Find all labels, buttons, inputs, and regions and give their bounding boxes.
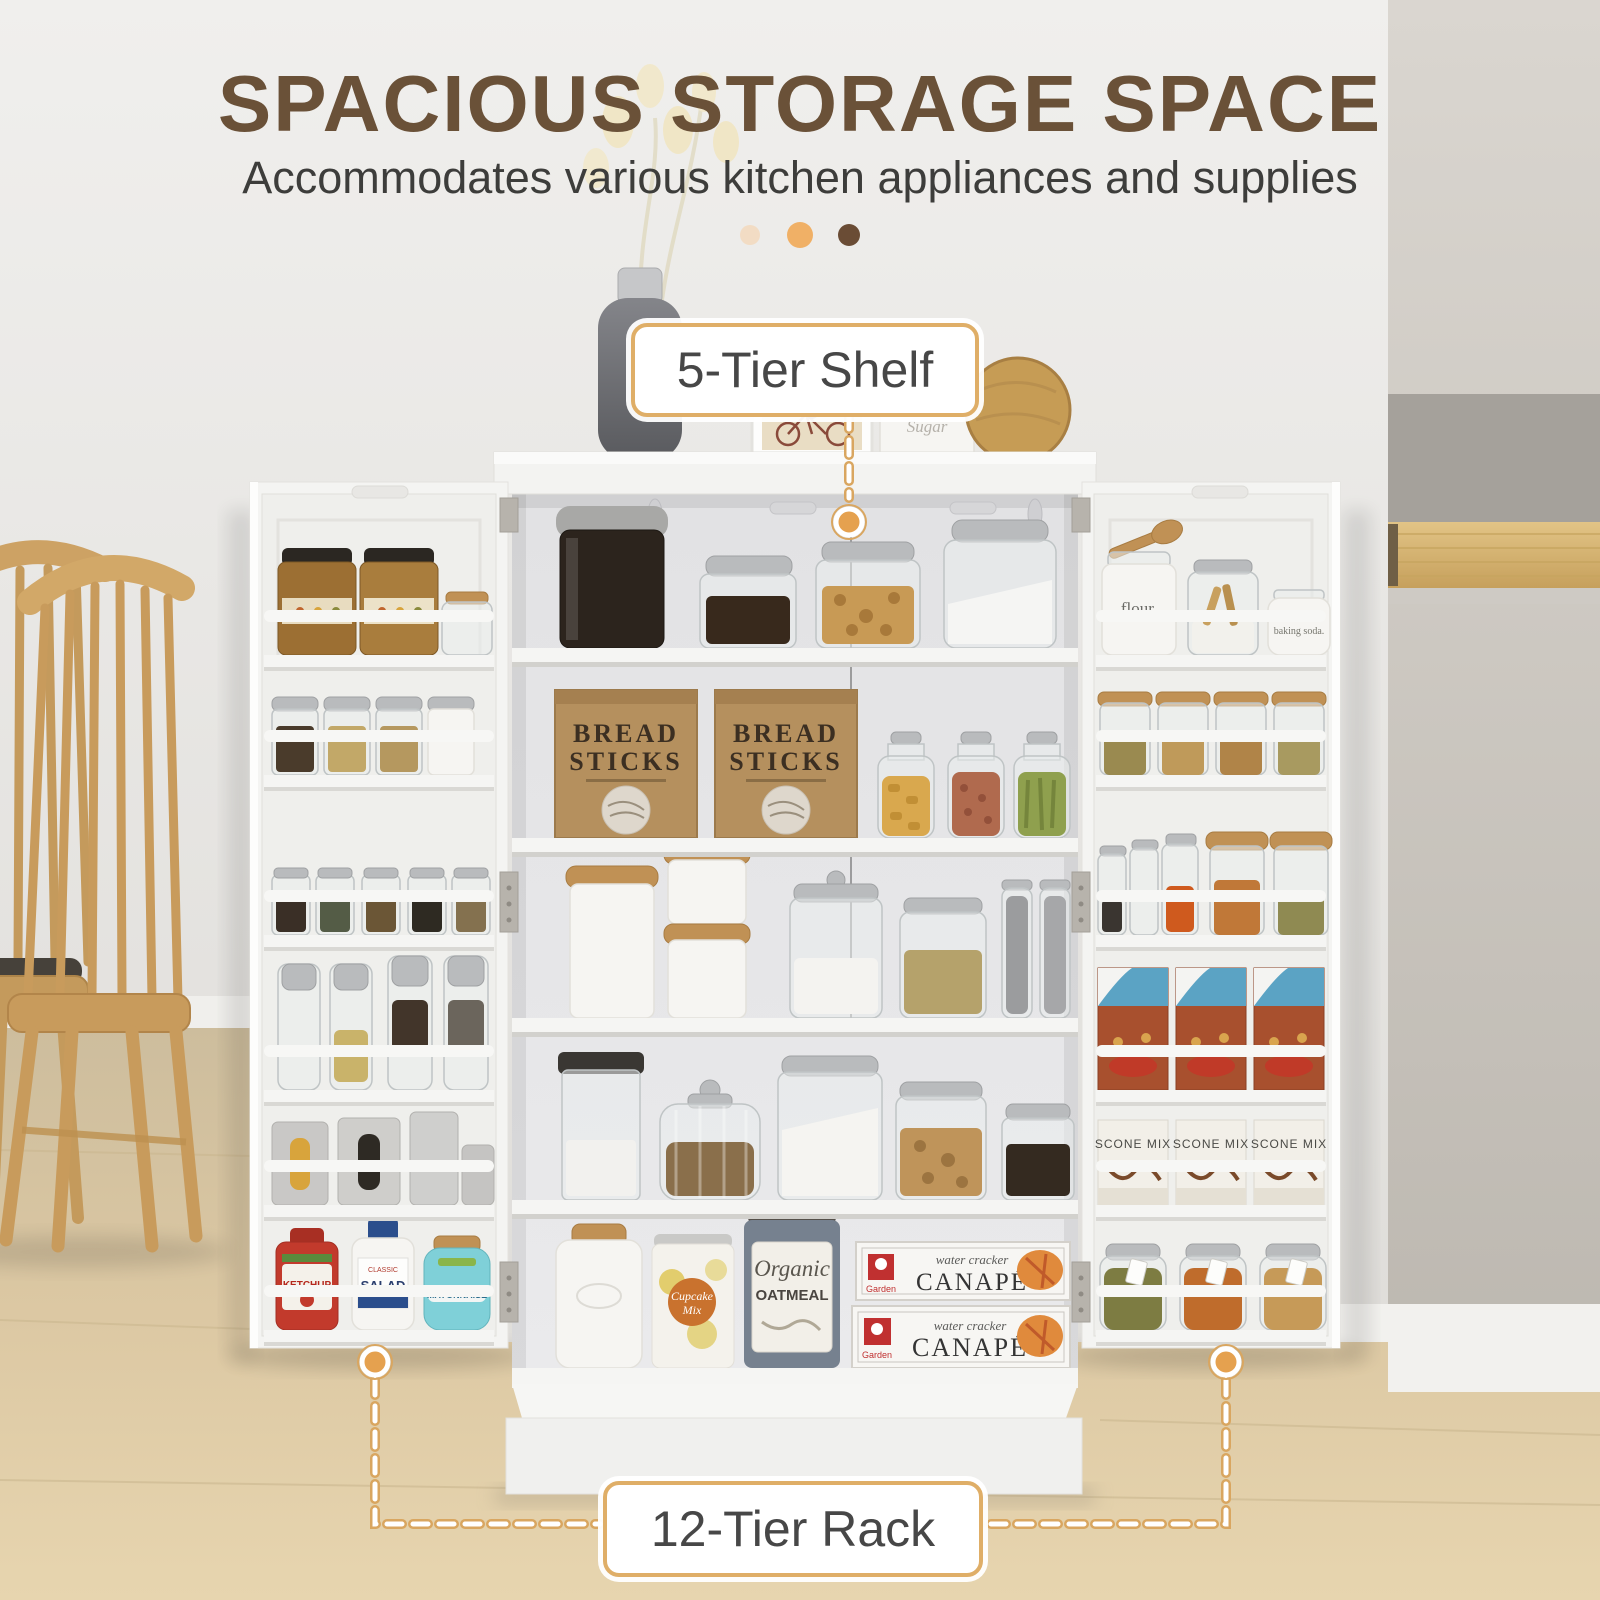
sugar-label: Sugar: [907, 417, 948, 436]
cupcake-mix-can: Cupcake Mix: [652, 1234, 734, 1368]
scoop-jar: [1188, 560, 1258, 655]
ketchup-bottle: KETCHUP: [276, 1228, 338, 1330]
rack-label-text: 12-Tier Rack: [651, 1500, 935, 1558]
page-subtitle: Accommodates various kitchen appliances …: [0, 152, 1600, 204]
cork-jar-small: [442, 592, 492, 655]
shelf-label-text: 5-Tier Shelf: [677, 341, 934, 399]
svg-text:BREAD: BREAD: [733, 719, 839, 748]
svg-text:SCONE MIX: SCONE MIX: [1251, 1137, 1327, 1151]
cabinet-door-left[interactable]: KETCHUP CLASSIC SALAD MAYONNAISE: [250, 482, 508, 1348]
baking-soda-jar: baking soda.: [1268, 590, 1330, 655]
svg-text:CANAPÉ: CANAPÉ: [916, 1268, 1028, 1296]
honey-jar: [360, 548, 438, 655]
cracker-jar-2: [896, 1082, 986, 1200]
flour-labeled-jar: flour.: [1102, 552, 1176, 655]
carousel-dot-3[interactable]: [838, 224, 860, 246]
white-canister-tall: [566, 866, 658, 1018]
svg-text:CLASSIC: CLASSIC: [368, 1267, 398, 1274]
oatmeal-canister: Organic OATMEAL: [744, 1204, 840, 1368]
cabinet-door-right[interactable]: flour. baking soda. SCONE MIX SCONE MIX …: [1082, 482, 1340, 1348]
callout-rack-label: 12-Tier Rack: [603, 1481, 983, 1577]
callout-shelf-label: 5-Tier Shelf: [631, 323, 979, 417]
grain-glass-jar: [900, 898, 986, 1018]
svg-text:baking soda.: baking soda.: [1274, 626, 1325, 637]
svg-text:CANAPÉ: CANAPÉ: [912, 1333, 1028, 1362]
sauce-bottles-and-canisters: [1098, 832, 1332, 935]
canape-box: Garden water cracker CANAPÉ: [852, 1306, 1070, 1368]
svg-text:OATMEAL: OATMEAL: [755, 1287, 828, 1304]
product-infographic: Sugar BREAD STICKS BREAD STICKS: [0, 0, 1600, 1600]
svg-text:Garden: Garden: [866, 1284, 896, 1294]
coffee-canister: [556, 506, 668, 648]
cereal-boxes: [1098, 968, 1324, 1090]
carousel-dot-2[interactable]: [787, 222, 813, 248]
page-title: SPACIOUS STORAGE SPACE: [0, 58, 1600, 150]
svg-text:Organic: Organic: [754, 1256, 830, 1281]
flour-glass-jar: [790, 871, 882, 1018]
bread-sticks-bag: BREAD STICKS: [555, 690, 697, 838]
bean-jar: [700, 556, 796, 648]
peppercorn-jar: [1002, 1104, 1074, 1200]
canape-box: Garden water cracker CANAPÉ: [856, 1242, 1070, 1300]
svg-text:SCONE MIX: SCONE MIX: [1095, 1137, 1171, 1151]
carousel-dot-1[interactable]: [740, 225, 760, 245]
svg-text:water cracker: water cracker: [934, 1318, 1008, 1333]
wooden-round-board: [966, 358, 1070, 462]
square-jar-black-lid: [558, 1052, 644, 1200]
white-canister-stack: [664, 844, 750, 1018]
cabinet-top: [494, 452, 1096, 494]
svg-text:Garden: Garden: [862, 1350, 892, 1360]
svg-text:Cupcake: Cupcake: [671, 1289, 714, 1303]
cracker-jar: [816, 542, 920, 648]
bread-sticks-bag: BREAD STICKS: [715, 690, 857, 838]
svg-text:STICKS: STICKS: [729, 747, 842, 776]
svg-text:water cracker: water cracker: [936, 1252, 1010, 1267]
svg-text:BREAD: BREAD: [573, 719, 679, 748]
svg-text:STICKS: STICKS: [569, 747, 682, 776]
svg-text:SCONE MIX: SCONE MIX: [1173, 1137, 1249, 1151]
mayonnaise-jar: MAYONNAISE: [424, 1236, 490, 1330]
ceramic-jar-cork: [556, 1224, 642, 1368]
sugar-jar-large: [944, 520, 1056, 648]
svg-text:Mix: Mix: [682, 1303, 702, 1317]
honey-jar: [278, 548, 356, 655]
flour-jar-large: [778, 1056, 882, 1200]
scene: Sugar BREAD STICKS BREAD STICKS: [0, 0, 1600, 1600]
